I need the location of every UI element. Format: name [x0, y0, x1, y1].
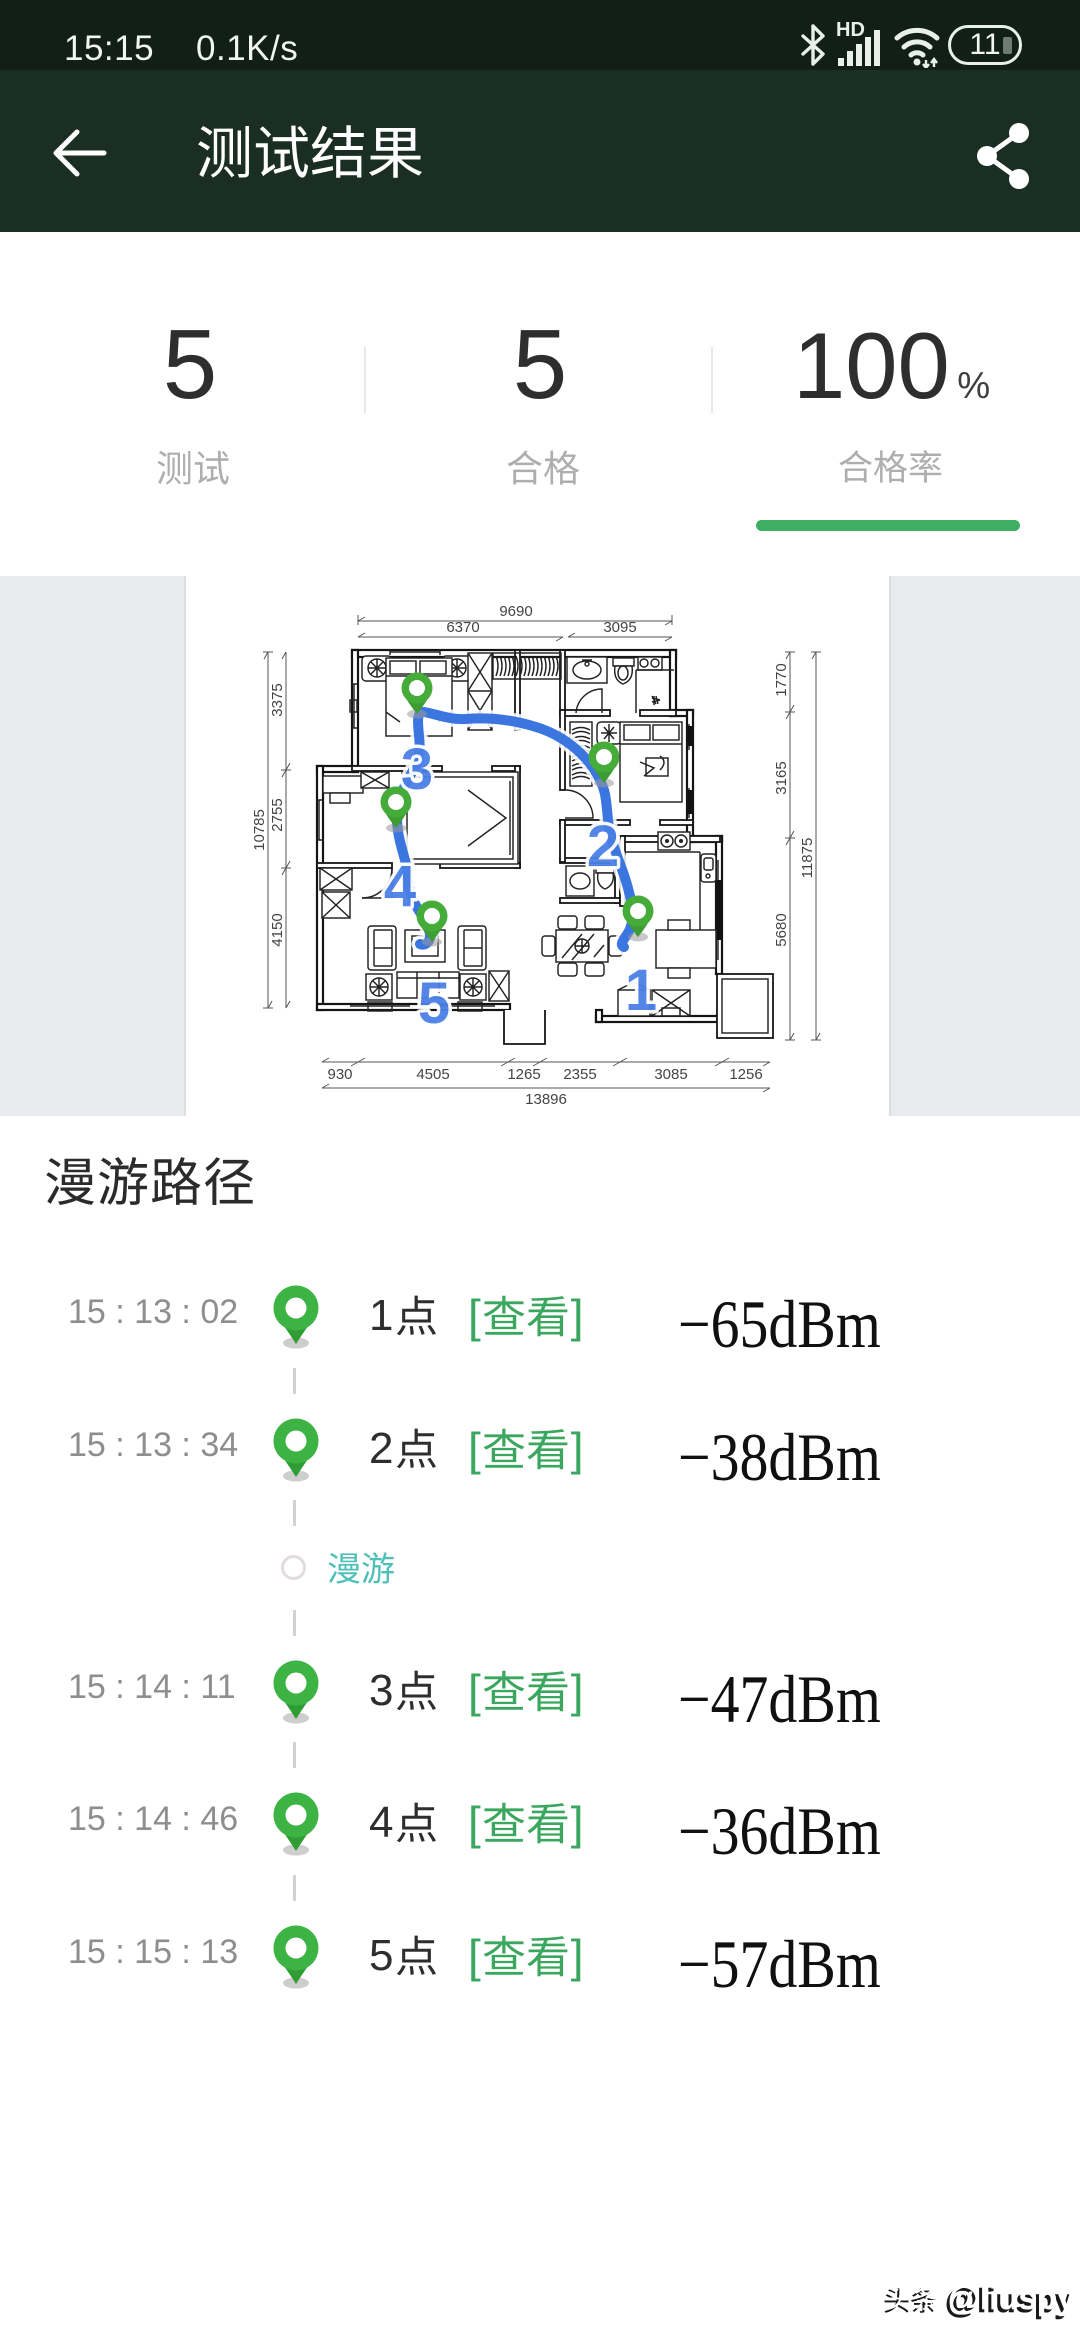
svg-text:6370: 6370 [446, 619, 479, 636]
svg-text:11875: 11875 [799, 838, 816, 879]
svg-text:1: 1 [625, 958, 657, 1023]
svg-text:9690: 9690 [499, 603, 532, 620]
svg-text:HD: HD [836, 19, 865, 41]
svg-text:3375: 3375 [269, 683, 286, 716]
svg-text:13896: 13896 [525, 1091, 567, 1108]
svg-text:2755: 2755 [269, 798, 286, 831]
svg-text:1770: 1770 [773, 663, 790, 696]
svg-text:5: 5 [418, 971, 450, 1036]
svg-text:2355: 2355 [563, 1066, 596, 1083]
svg-text:3165: 3165 [773, 761, 790, 794]
svg-text:4505: 4505 [416, 1066, 449, 1083]
svg-text:4150: 4150 [269, 913, 286, 946]
svg-text:3085: 3085 [654, 1066, 687, 1083]
svg-text:3095: 3095 [603, 619, 636, 636]
svg-text:930: 930 [327, 1066, 352, 1083]
svg-text:10785: 10785 [251, 809, 268, 851]
svg-text:5680: 5680 [773, 913, 790, 946]
svg-text:4: 4 [384, 854, 416, 919]
svg-text:1265: 1265 [507, 1066, 540, 1083]
svg-text:2: 2 [587, 814, 619, 879]
svg-text:1256: 1256 [729, 1066, 762, 1083]
